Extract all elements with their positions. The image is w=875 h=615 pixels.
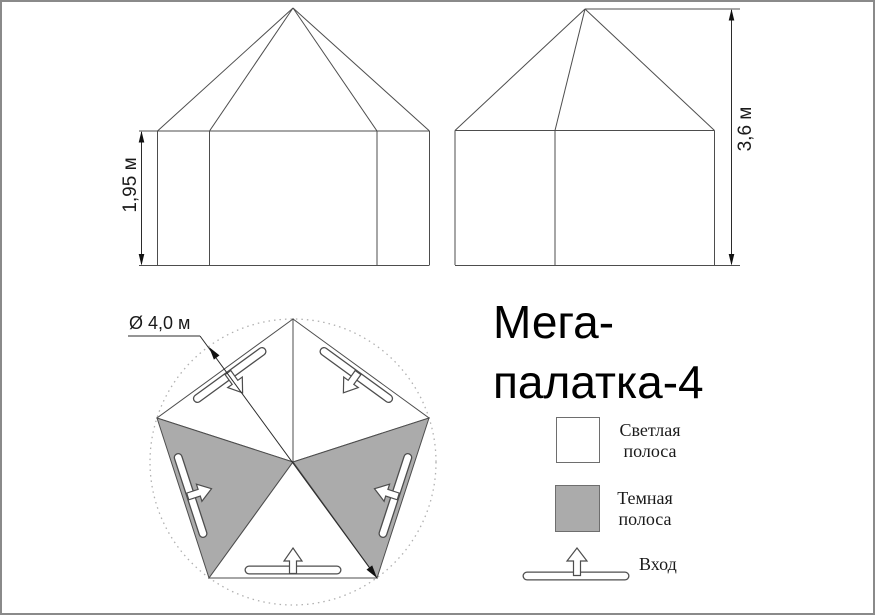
total-height-dimension-label: 3,6 м (735, 69, 757, 189)
side-elevation-view (455, 9, 740, 266)
legend-light-label-line-2: полоса (602, 441, 698, 462)
side-height-dimension (729, 9, 735, 266)
legend-dark-label-line-2: полоса (597, 509, 693, 530)
legend-entrance-label: Вход (639, 554, 677, 575)
legend-dark-swatch (556, 486, 600, 532)
plan-view (128, 319, 436, 605)
legend-entrance-symbol (527, 548, 625, 576)
legend-dark-label: Темная полоса (597, 488, 693, 530)
diameter-dimension-label: Ø 4,0 м (129, 313, 190, 334)
page-title-line-2: палатка-4 (493, 352, 704, 412)
legend-dark-label-line-1: Темная (597, 488, 693, 509)
legend-light-label: Светлая полоса (602, 420, 698, 462)
front-elevation-view (139, 8, 430, 266)
page-title: Мега- палатка-4 (493, 292, 704, 412)
legend-light-swatch (557, 418, 600, 463)
legend-light-label-line-1: Светлая (602, 420, 698, 441)
tent-specification-diagram: { "title": { "lines": ["Мега-", "палатка… (0, 0, 875, 615)
wall-height-dimension-label: 1,95 м (120, 125, 142, 245)
page-title-line-1: Мега- (493, 292, 704, 352)
